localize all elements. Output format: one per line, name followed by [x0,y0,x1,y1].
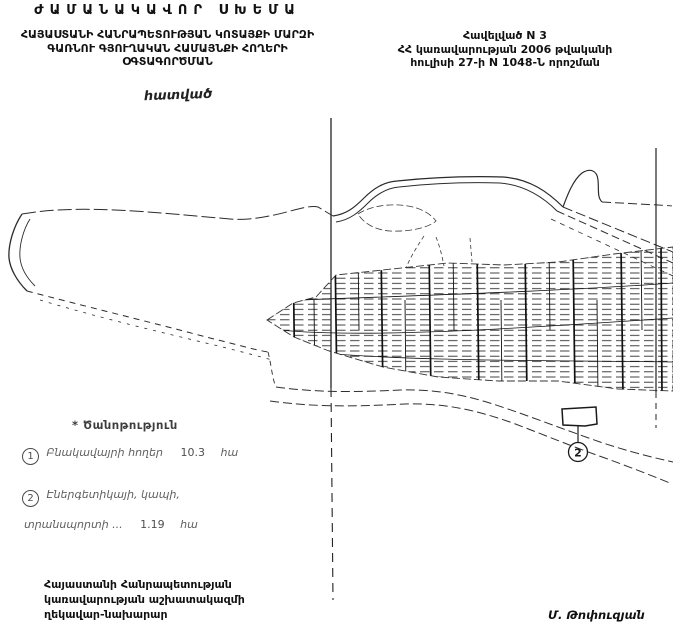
office-line-1: Հայաստանի Հանրապետության [44,577,245,592]
document-title: ԺԱՄԱՆԱԿԱՎՈՐ ՍԽԵՄԱ [0,3,335,18]
legend-item-1-unit: հա [220,446,238,459]
office-line-2: կառավարության աշխատակազմի [44,592,245,607]
title-block: ԺԱՄԱՆԱԿԱՎՈՐ ՍԽԵՄԱ ՀԱՅԱՍՏԱՆԻ ՀԱՆՐԱՊԵՏՈՒԹՅ… [0,3,335,69]
callout-number: 2 [574,447,582,460]
legend-item-1: 1 Բնակավայրի հողեր 10.3 հա [22,446,238,465]
river-line [270,387,673,483]
signatory-name: Մ. Թոփուզյան [548,608,645,622]
legend-item-1-label: Բնակավայրի հողեր [47,446,163,459]
office-line-3: ղեկավար-նախարար [44,607,245,622]
land-boundary [9,206,333,387]
legend-item-2-continued: տրանսպորտի ... 1.19 հա [24,518,198,531]
survey-line-west [331,118,333,600]
subtitle-line-1: ՀԱՅԱՍՏԱՆԻ ՀԱՆՐԱՊԵՏՈՒԹՅԱՆ ԿՈՏԱՅՔԻ ՄԱՐԶԻ [0,28,335,42]
document-subtitle: ՀԱՅԱՍՏԱՆԻ ՀԱՆՐԱՊԵՏՈՒԹՅԱՆ ԿՈՏԱՅՔԻ ՄԱՐԶԻ Գ… [0,28,335,69]
legend-note: * Ծանոթություն [72,418,178,432]
legend-item-2-unit: հա [180,518,198,531]
annex-reference: Հավելված N 3 ՀՀ կառավարության 2006 թվակա… [355,29,655,70]
signing-office-block: Հայաստանի Հանրապետության կառավարության ա… [44,577,245,622]
land-use-map: 2 [0,0,673,631]
legend-item-2: 2 Էներգետիկայի, կապի, [22,488,180,507]
annex-line-2: ՀՀ կառավարության 2006 թվականի [355,43,655,57]
parcel-area [267,246,673,396]
legend-item-1-value: 10.3 [180,446,205,459]
legend-item-1-number: 1 [22,448,39,465]
legend-item-2-label-line2: տրանսպորտի ... [24,518,123,531]
small-enclosure [358,205,472,268]
legend-item-2-number: 2 [22,490,39,507]
legend-item-2-value: 1.19 [140,518,165,531]
subtitle-line-2: ԳԱՌՆՈՒ ԳՅՈՒՂԱԿԱՆ ՀԱՄԱՅՆՔԻ ՀՈՂԵՐԻ [0,42,335,56]
scanned-document-page: 2 ԺԱՄԱՆԱԿԱՎՈՐ ՍԽԵՄԱ ՀԱՅԱՍՏԱՆԻ ՀԱՆՐԱՊԵՏՈՒ… [0,0,673,631]
legend-item-2-label-line1: Էներգետիկայի, կապի, [47,488,180,501]
annex-line-3: հուլիսի 27-ի N 1048-Ն որոշման [355,56,655,70]
annex-line-1: Հավելված N 3 [355,29,655,43]
subtitle-line-3: ՕԳՏԱԳՈՐԾՄԱՆ [0,55,335,69]
